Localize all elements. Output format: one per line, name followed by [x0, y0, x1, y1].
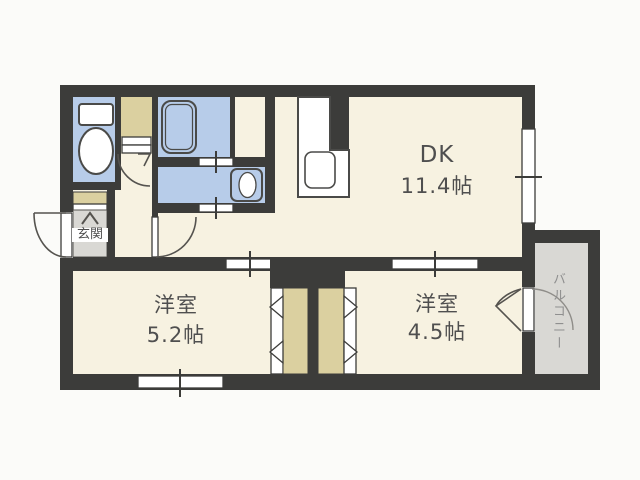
- wall-entrance-right: [107, 190, 115, 257]
- bedroom-left-label: 洋室: [134, 294, 218, 317]
- entrance-label: 玄関: [72, 228, 108, 242]
- wall-kitchen-stub: [330, 85, 349, 150]
- front-door: [34, 212, 73, 258]
- bedroom-left-size: 5.2帖: [124, 324, 228, 347]
- closet-right: [318, 288, 344, 374]
- wall-bath-right: [230, 97, 235, 157]
- kitchen-sink-icon: [305, 152, 335, 188]
- wall-top: [60, 85, 535, 97]
- wall-toilet-bottom: [60, 182, 121, 190]
- shoe-shelf: [73, 192, 107, 204]
- balcony-label: バルコニー: [551, 262, 564, 362]
- closet-cap-wall: [270, 257, 345, 288]
- bedroom-right-label: 洋室: [395, 293, 479, 316]
- dk-label: DK: [395, 143, 479, 168]
- bedroom-right-size: 4.5帖: [385, 321, 489, 344]
- wall-hall-right: [265, 97, 275, 213]
- toilet-icon: [79, 104, 113, 174]
- dk-size: 11.4帖: [385, 175, 489, 198]
- storage-closet: [121, 97, 152, 137]
- floor-plan: DK 11.4帖 洋室 5.2帖 洋室 4.5帖 玄関 バルコニー: [0, 0, 640, 480]
- closet-left: [283, 288, 308, 374]
- closet-divider-wall: [308, 288, 318, 374]
- balcony-wall-right: [588, 230, 600, 390]
- wall-toilet-right: [115, 97, 121, 182]
